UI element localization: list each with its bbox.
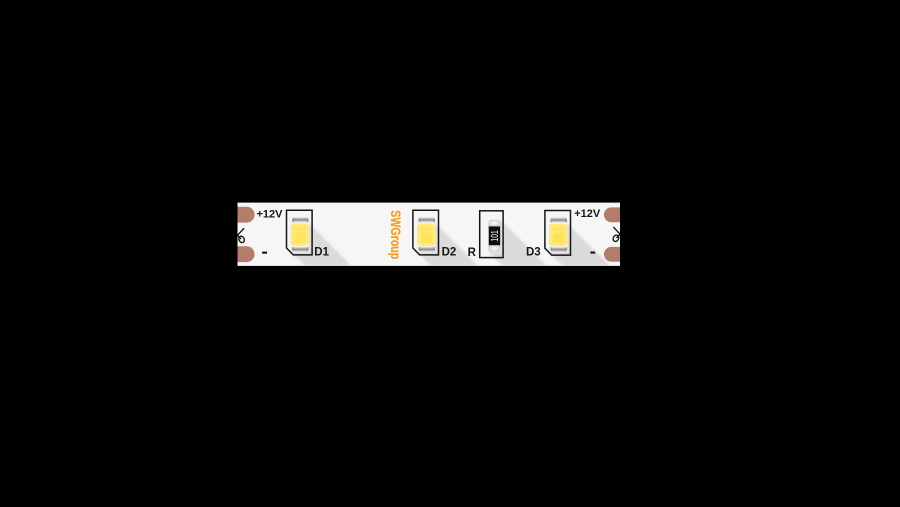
svg-text:D3: D3	[526, 246, 541, 258]
svg-text:SWGroup: SWGroup	[388, 210, 403, 259]
svg-text:101: 101	[489, 230, 501, 241]
svg-text:D2: D2	[442, 247, 457, 259]
svg-text:+12V: +12V	[257, 208, 284, 220]
svg-text:D1: D1	[314, 246, 329, 258]
svg-text:R: R	[468, 247, 477, 259]
svg-text:+12V: +12V	[574, 208, 601, 220]
